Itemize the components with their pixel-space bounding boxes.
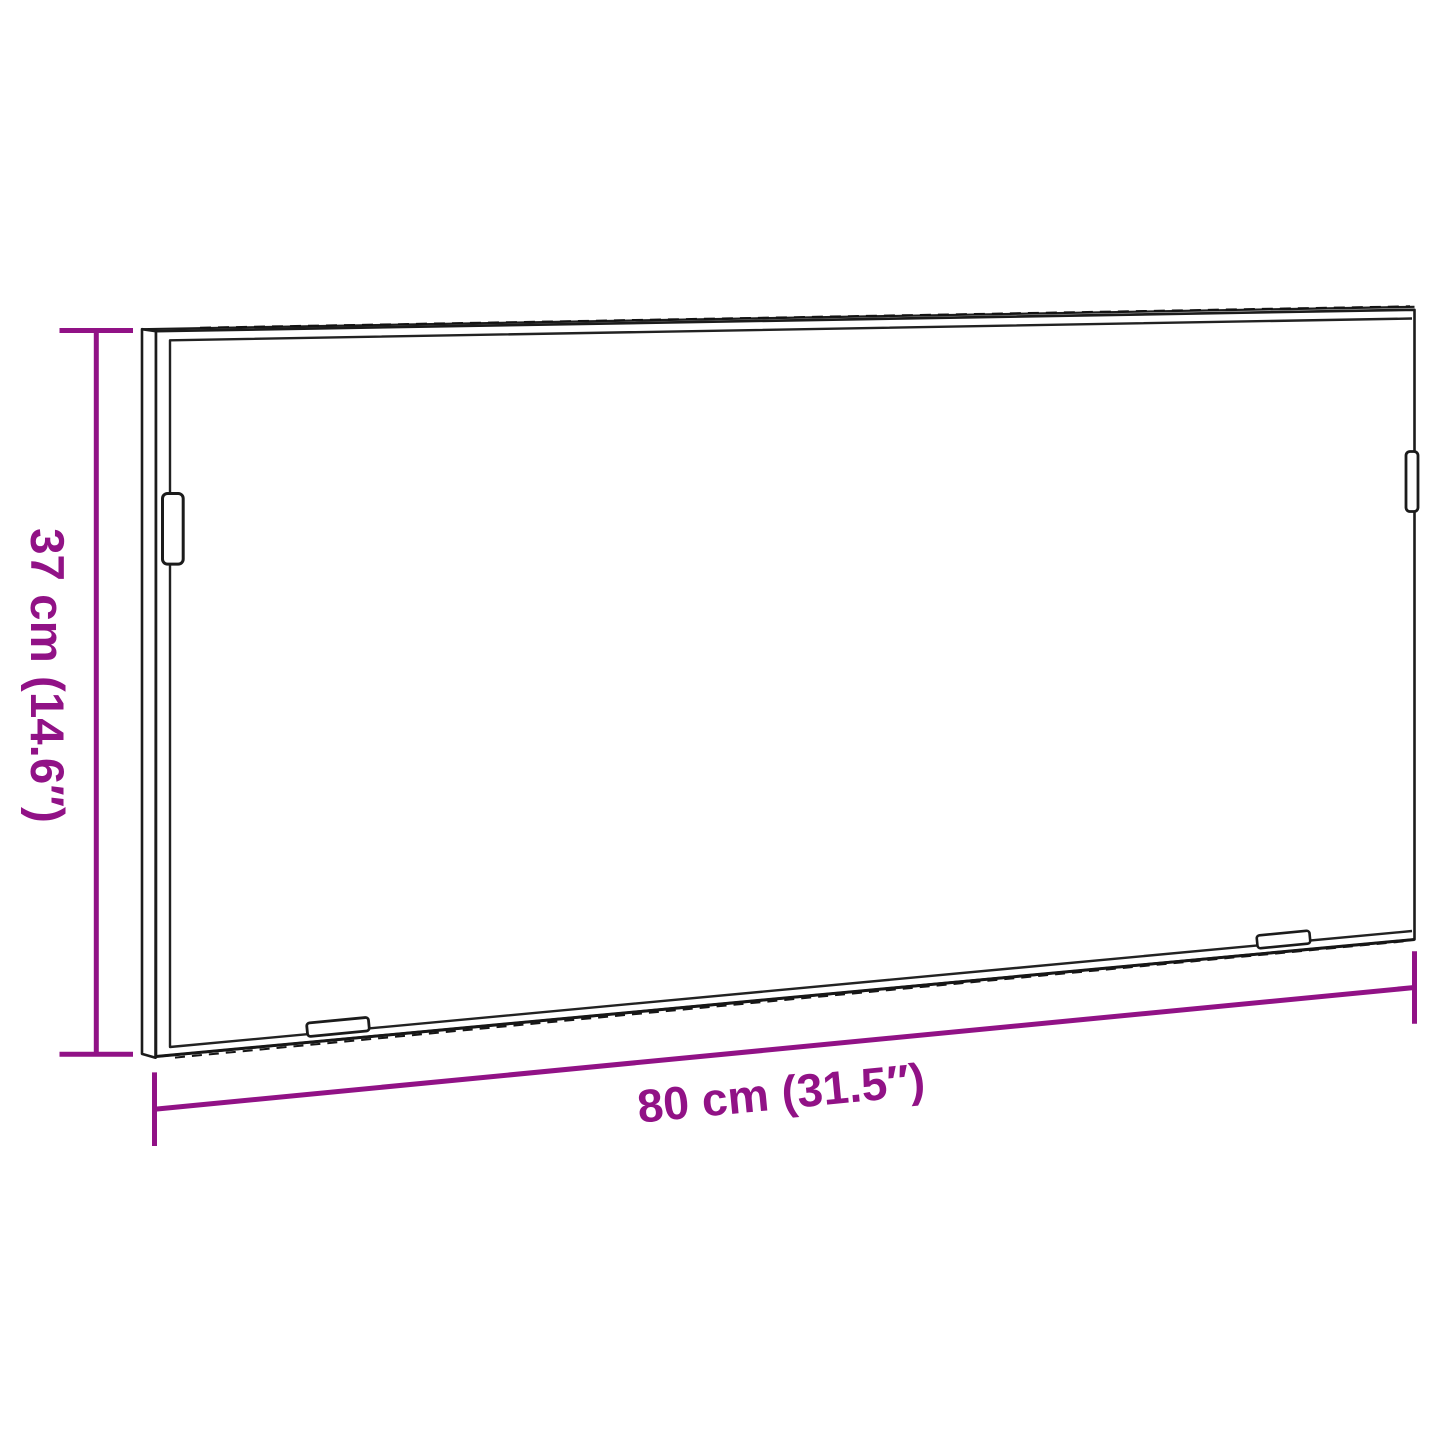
svg-text:37 cm (14.6″): 37 cm (14.6″) bbox=[20, 528, 73, 823]
svg-text:80 cm (31.5″): 80 cm (31.5″) bbox=[635, 1053, 927, 1132]
